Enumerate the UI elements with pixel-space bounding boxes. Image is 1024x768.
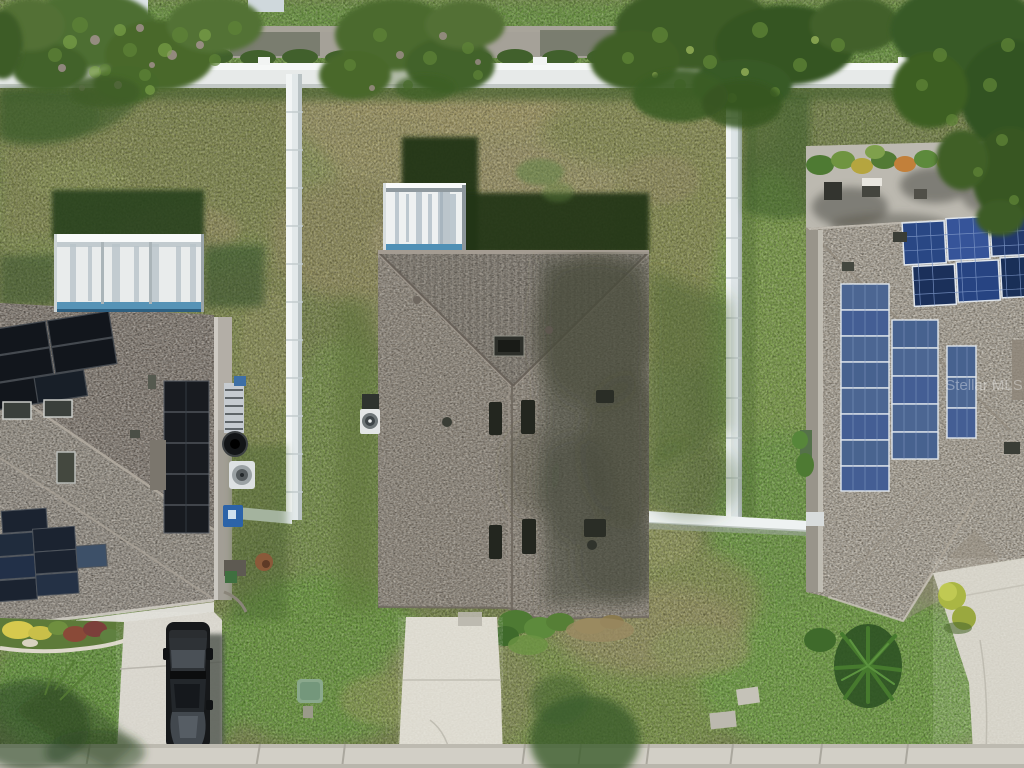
svg-text:Stellar MLS: Stellar MLS: [945, 377, 1023, 394]
